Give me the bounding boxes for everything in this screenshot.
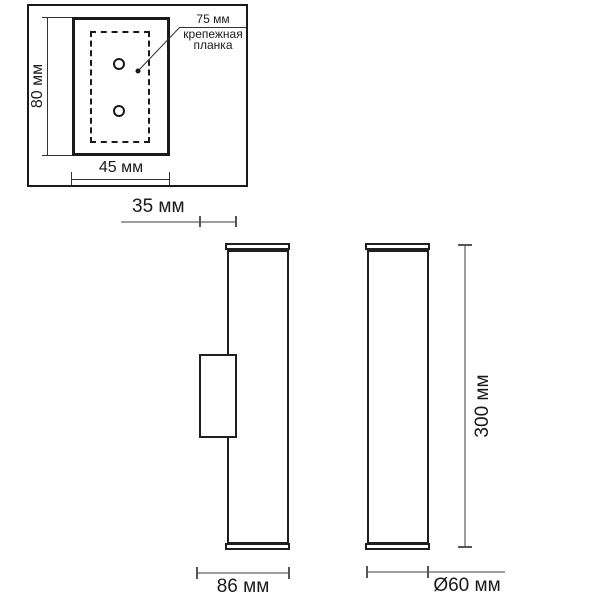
mounting-bracket bbox=[199, 354, 237, 438]
lamp-top-cap bbox=[225, 243, 290, 250]
tick-left bbox=[199, 216, 201, 227]
dimension-label: 86 мм bbox=[197, 576, 289, 598]
dimension-label: 300 мм bbox=[472, 366, 494, 446]
tick-right bbox=[235, 216, 237, 227]
screw-hole-top bbox=[113, 58, 125, 70]
lamp-technical-drawing: 80 мм 45 мм 75 мм крепежная планка bbox=[0, 0, 600, 600]
dimension-line bbox=[71, 179, 170, 180]
extension-line-top bbox=[42, 17, 72, 18]
leader-dot bbox=[136, 69, 141, 74]
screw-hole-bottom bbox=[113, 105, 125, 117]
dimension-line bbox=[464, 245, 466, 548]
lamp-bottom-cap bbox=[365, 543, 430, 550]
dimension-line bbox=[121, 221, 237, 223]
dimension-label: 80 мм bbox=[29, 56, 45, 116]
lamp-bottom-cap bbox=[225, 543, 290, 550]
mount-plate-label-line2: планка bbox=[194, 38, 233, 52]
tick-top bbox=[458, 244, 472, 246]
dimension-line bbox=[47, 17, 48, 156]
dimension-line bbox=[367, 571, 505, 573]
tick-bottom bbox=[458, 546, 472, 548]
extension-line-bottom bbox=[42, 155, 72, 156]
dimension-label: 35 мм bbox=[132, 196, 185, 218]
dimension-line bbox=[197, 572, 289, 574]
lamp-top-cap bbox=[365, 243, 430, 250]
tick-left bbox=[366, 566, 368, 578]
mount-plate-label: крепежная планка bbox=[180, 29, 246, 51]
lamp-body bbox=[367, 250, 429, 544]
dimension-label: Ø60 мм bbox=[428, 575, 506, 597]
dimension-label: 45 мм bbox=[72, 159, 170, 177]
